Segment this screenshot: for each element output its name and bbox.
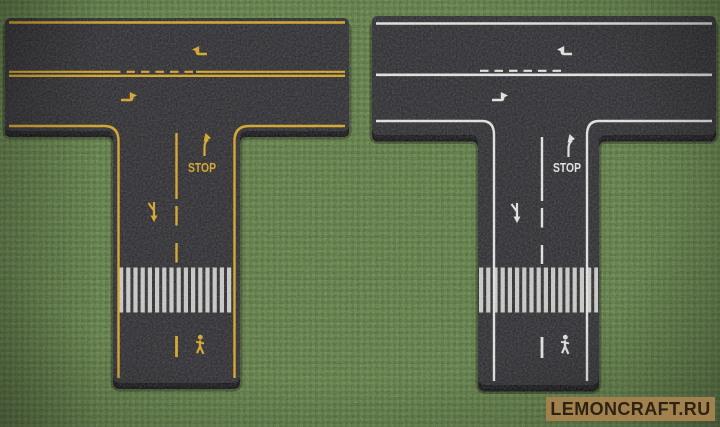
stop-marking-text: STOP <box>553 161 581 175</box>
minecraft-road-scene: STOP <box>0 0 720 427</box>
watermark-banner: LEMONCRAFT.RU <box>546 397 715 421</box>
edge-line-right <box>587 121 712 381</box>
white-road: STOP <box>0 0 720 427</box>
